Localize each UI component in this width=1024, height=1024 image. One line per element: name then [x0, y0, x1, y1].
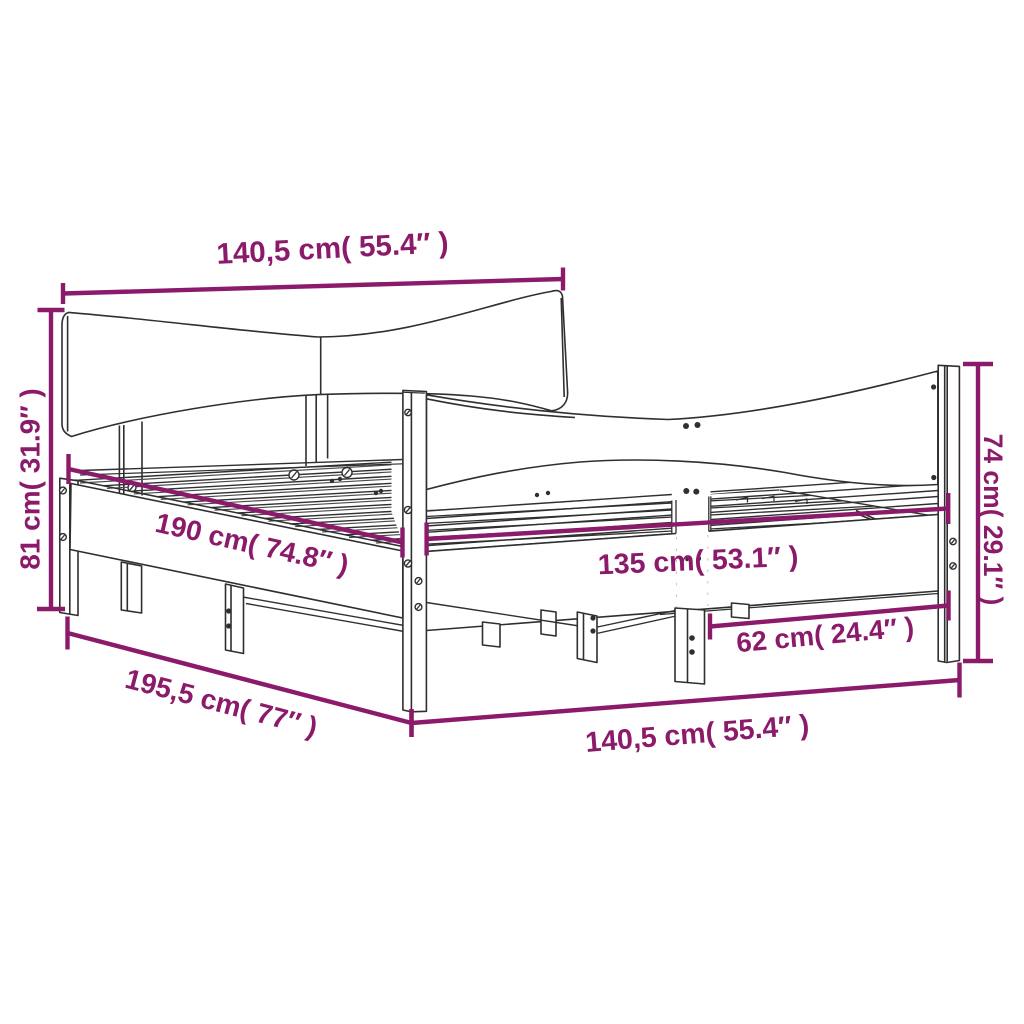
svg-text:74 cm( 29.1″ ): 74 cm( 29.1″ ) [978, 434, 1008, 606]
svg-text:81 cm( 31.9″ ): 81 cm( 31.9″ ) [15, 388, 46, 570]
